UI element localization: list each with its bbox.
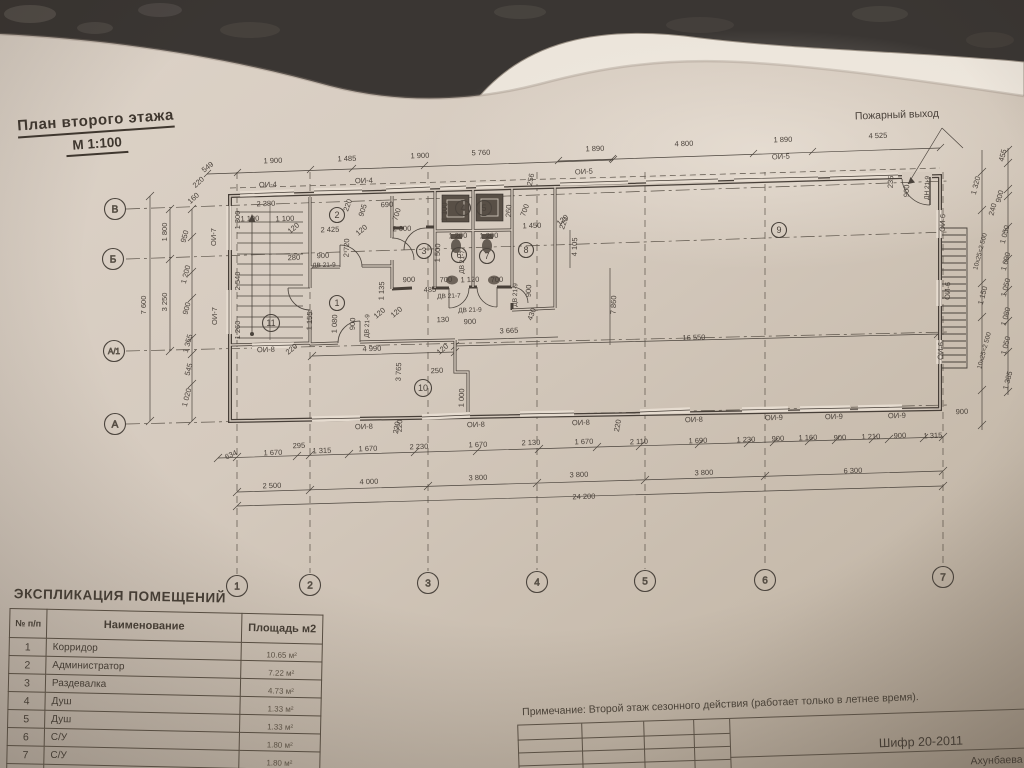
table-cell: 7.22 м² — [241, 660, 322, 680]
street-name-fragment: Ахунбаева — [970, 754, 1022, 768]
table-cell: 5 — [8, 709, 45, 728]
table-cell: 1 — [9, 637, 46, 656]
table-cell: 2 — [9, 655, 46, 674]
table-cell: 1.80 м² — [239, 750, 320, 768]
explication-table: № п/п Наименование Площадь м2 1Корридор1… — [6, 608, 324, 768]
table-cell: 1.33 м² — [240, 696, 321, 716]
table-cell: 4 — [8, 691, 45, 710]
photo-of-floor-plan-sheet: 1234567ВБА/1А — [0, 0, 1024, 768]
header-number: № п/п — [9, 609, 47, 639]
table-cell: 8 — [6, 763, 43, 768]
header-area: Площадь м2 — [241, 613, 323, 644]
header-name: Наименование — [46, 609, 242, 642]
table-cell: 4.73 м² — [240, 678, 321, 698]
table-cell: 7 — [7, 745, 44, 764]
room-explication: ЭКСПЛИКАЦИЯ ПОМЕЩЕНИЙ № п/п Наименование… — [6, 586, 324, 768]
table-cell: 3 — [8, 673, 45, 692]
table-cell: 10.65 м² — [241, 642, 322, 662]
table-cell: 6 — [7, 727, 44, 746]
table-cell: 1.80 м² — [239, 732, 320, 752]
table-cell: 1.33 м² — [239, 714, 320, 734]
